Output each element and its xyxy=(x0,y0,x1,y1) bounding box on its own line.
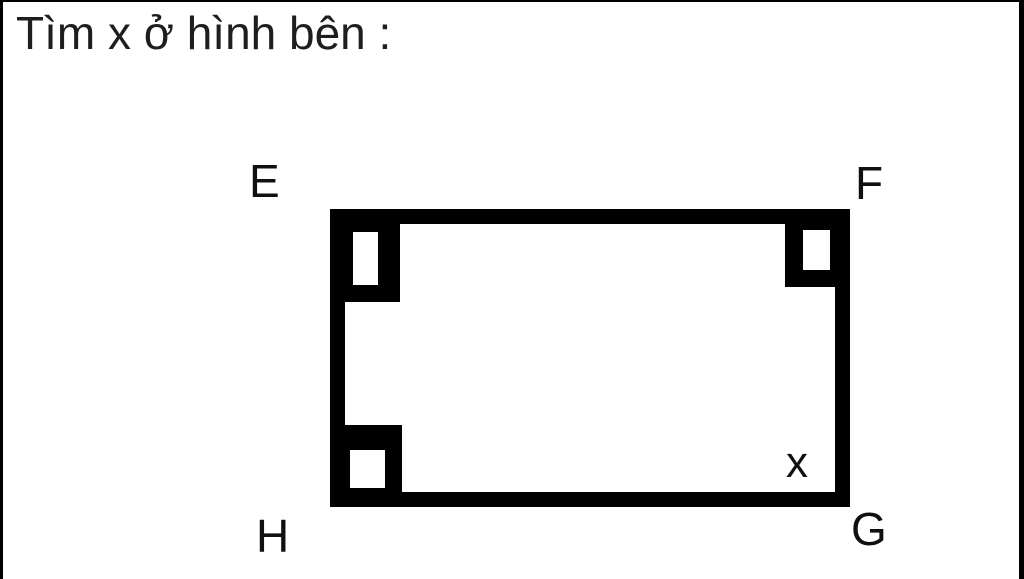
right-angle-marker-E-inner xyxy=(353,232,378,285)
vertex-label-h: H xyxy=(256,513,289,559)
right-angle-marker-H-inner xyxy=(350,450,385,488)
vertex-label-f: F xyxy=(855,160,883,206)
top-border-line xyxy=(0,0,1024,2)
unknown-angle-label: x xyxy=(786,441,808,485)
vertex-label-g: G xyxy=(851,506,887,552)
vertex-label-e: E xyxy=(249,158,280,204)
right-angle-marker-F-inner xyxy=(803,230,830,270)
problem-title: Tìm x ở hình bên : xyxy=(16,7,391,60)
left-border-line xyxy=(0,0,3,579)
right-border-strip xyxy=(1019,0,1024,579)
rectangle-EFGH xyxy=(330,209,850,507)
problem-page: Tìm x ở hình bên : E F G H x xyxy=(0,0,1024,579)
